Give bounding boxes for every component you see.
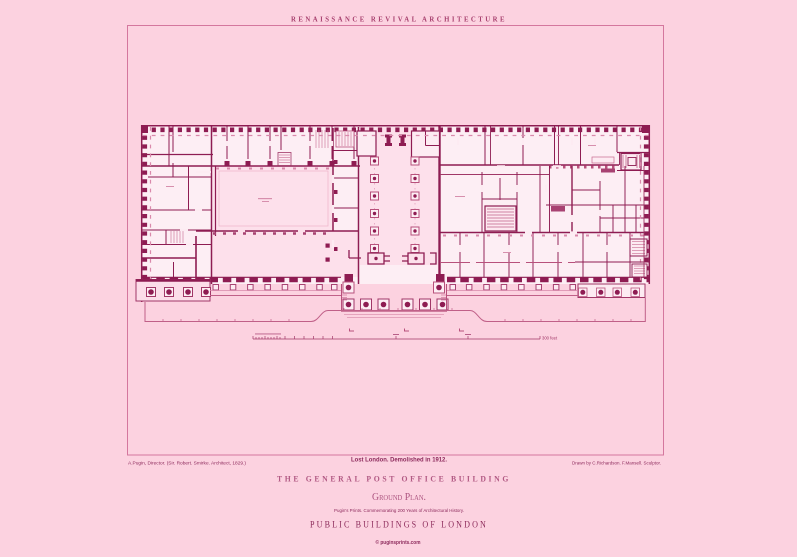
svg-text:© puginsprints.com: © puginsprints.com [376,539,422,546]
svg-text:Lost London. Demolished in 191: Lost London. Demolished in 1912. [351,457,447,464]
svg-text:Ground Plan.: Ground Plan. [372,492,426,503]
svg-text:Drawn by C.Richardson. F.Manse: Drawn by C.Richardson. F.Mansell. Sculpt… [572,461,661,466]
svg-text:300 feet: 300 feet [542,336,558,341]
svg-text:PUBLIC BUILDINGS OF LONDON: PUBLIC BUILDINGS OF LONDON [310,521,488,531]
svg-text:A.Pugin, Director. (Sir. Rober: A.Pugin, Director. (Sir. Robert. Smirke.… [128,461,246,466]
svg-text:Pugin's Prints. Commemorating: Pugin's Prints. Commemorating 200 Years … [334,508,464,514]
svg-text:THE GENERAL POST OFFICE BUILDI: THE GENERAL POST OFFICE BUILDING [277,474,511,484]
svg-text:RENAISSANCE REVIVAL ARCHITECTU: RENAISSANCE REVIVAL ARCHITECTURE [291,17,507,24]
